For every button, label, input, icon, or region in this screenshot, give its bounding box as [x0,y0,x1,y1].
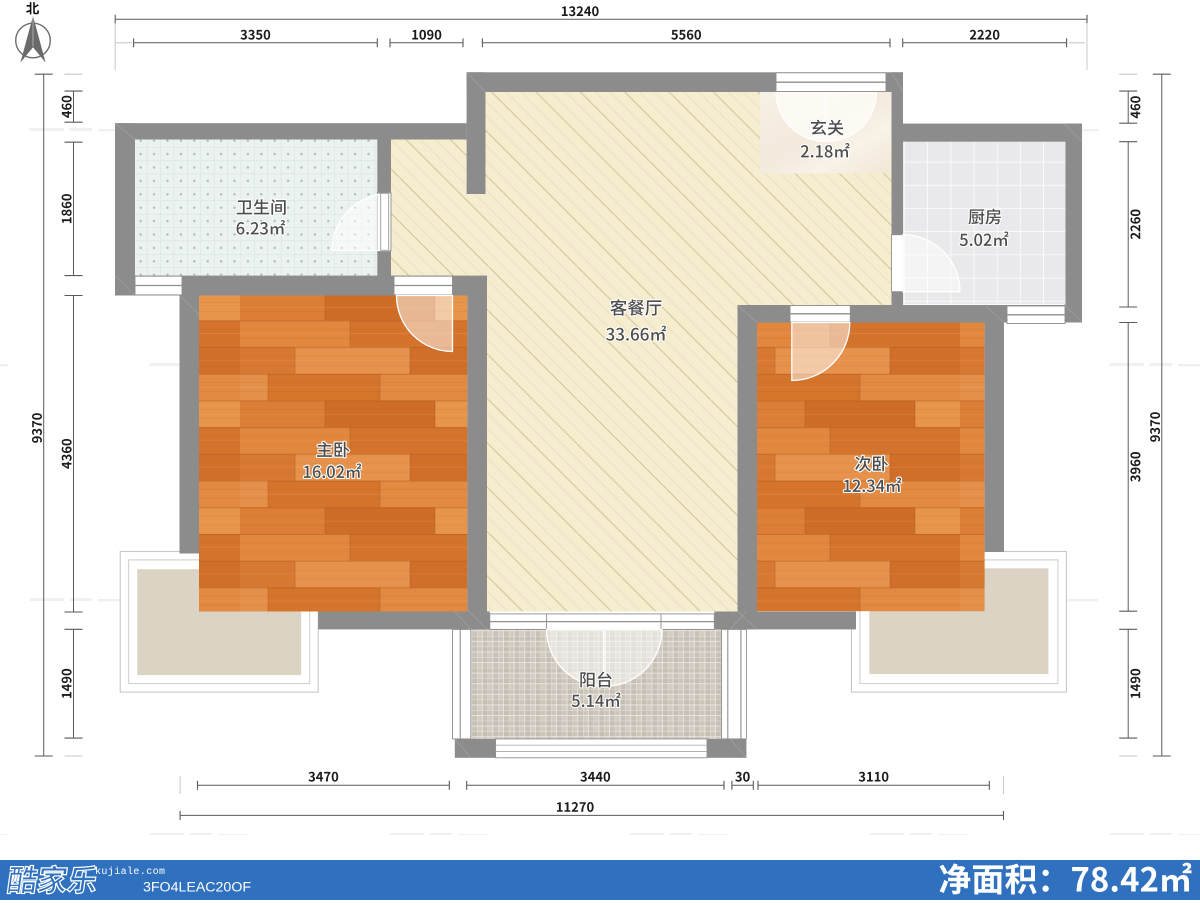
svg-text:3FO4LEAC20OF: 3FO4LEAC20OF [143,880,251,896]
svg-text:kujiale.com: kujiale.com [95,866,165,878]
